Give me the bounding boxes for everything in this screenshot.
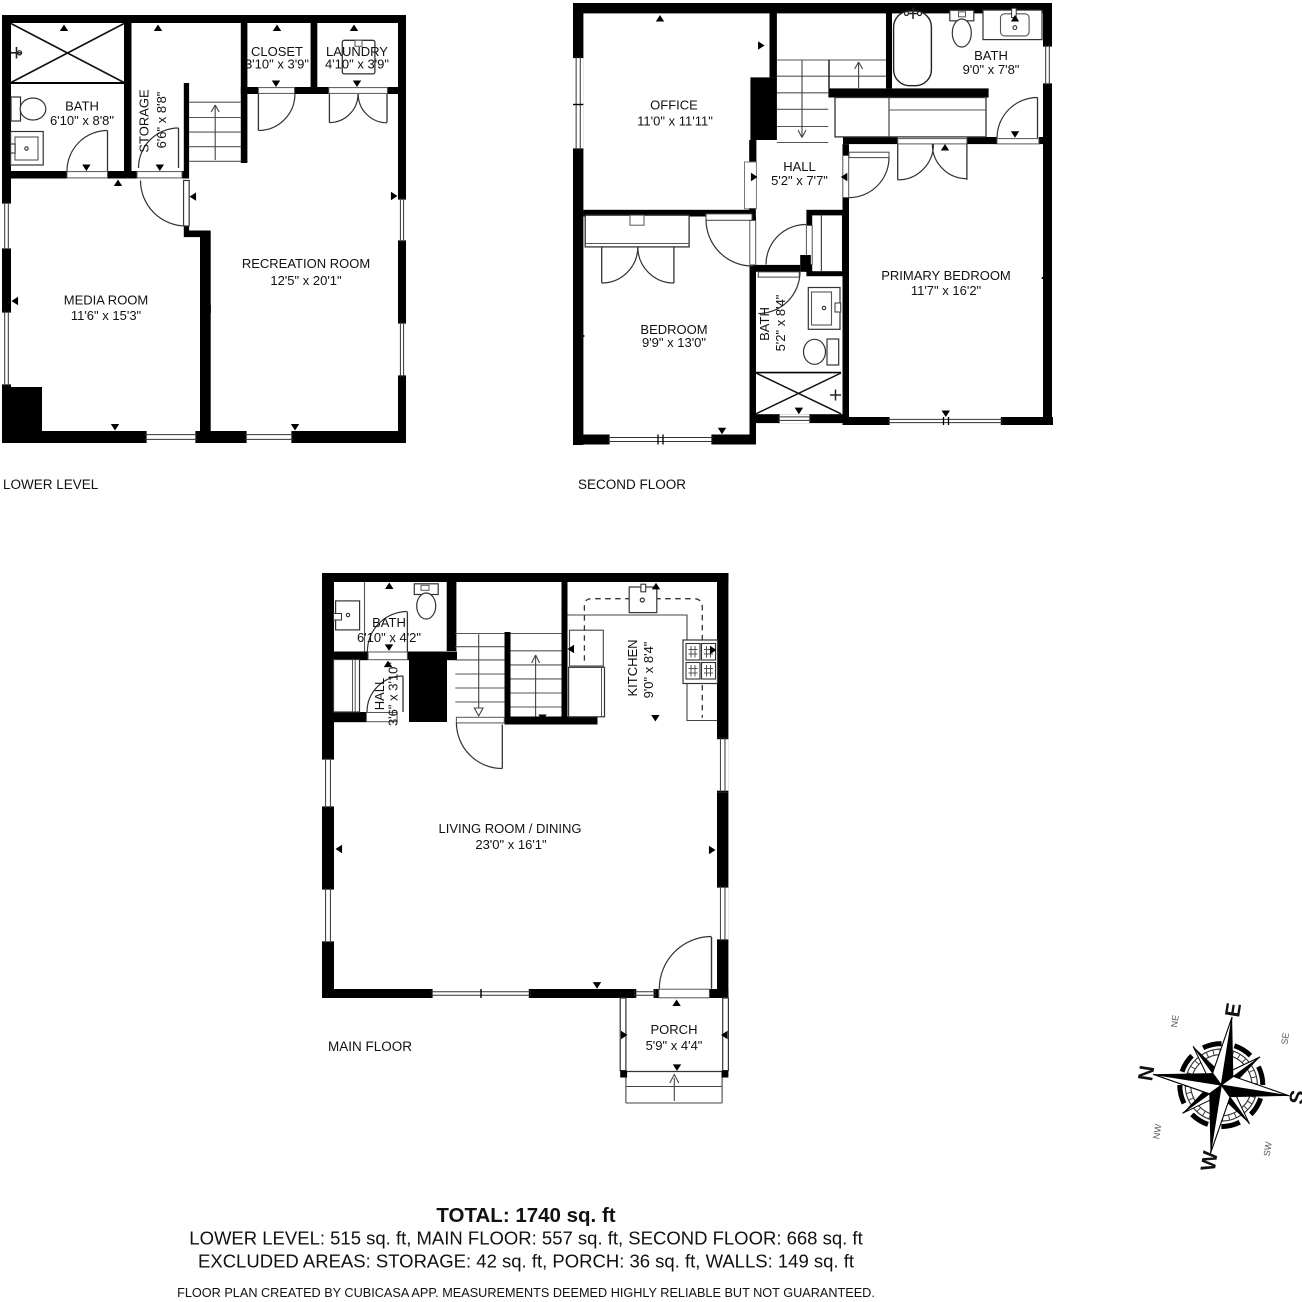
- svg-text:HALL: HALL: [783, 159, 816, 174]
- svg-text:11'0" x 11'11": 11'0" x 11'11": [637, 114, 713, 129]
- svg-text:9'0" x 7'8": 9'0" x 7'8": [963, 62, 1020, 77]
- svg-text:EXCLUDED AREAS: STORAGE: 42 sq: EXCLUDED AREAS: STORAGE: 42 sq. ft, PORC…: [198, 1251, 854, 1272]
- svg-text:12'5" x 20'1": 12'5" x 20'1": [270, 273, 342, 288]
- svg-text:BATH: BATH: [974, 48, 1008, 63]
- svg-text:PRIMARY BEDROOM: PRIMARY BEDROOM: [881, 268, 1011, 283]
- svg-text:MAIN FLOOR: MAIN FLOOR: [328, 1039, 412, 1054]
- svg-text:W: W: [1197, 1149, 1223, 1172]
- svg-text:OFFICE: OFFICE: [650, 98, 698, 113]
- svg-text:BATH: BATH: [372, 615, 406, 630]
- svg-text:TOTAL: 1740 sq. ft: TOTAL: 1740 sq. ft: [436, 1204, 615, 1227]
- svg-text:11'7" x 16'2": 11'7" x 16'2": [911, 283, 982, 298]
- svg-text:6'6" x 8'8": 6'6" x 8'8": [154, 91, 169, 148]
- svg-text:STORAGE: STORAGE: [137, 89, 152, 153]
- svg-text:11'6" x 15'3": 11'6" x 15'3": [71, 308, 142, 323]
- svg-text:6'10" x 4'2": 6'10" x 4'2": [357, 630, 421, 645]
- svg-text:4'10" x 3'9": 4'10" x 3'9": [325, 57, 389, 72]
- svg-text:9'9" x 13'0": 9'9" x 13'0": [642, 335, 706, 350]
- svg-text:S: S: [1285, 1089, 1302, 1106]
- svg-text:BATH: BATH: [757, 307, 772, 341]
- svg-text:5'2" x 7'7": 5'2" x 7'7": [771, 173, 828, 188]
- svg-text:6'10" x 8'8": 6'10" x 8'8": [50, 113, 114, 128]
- svg-text:23'0" x 16'1": 23'0" x 16'1": [475, 837, 547, 852]
- svg-text:3'10" x 3'9": 3'10" x 3'9": [245, 57, 309, 72]
- svg-text:SECOND FLOOR: SECOND FLOOR: [578, 477, 686, 492]
- svg-text:FLOOR PLAN CREATED BY CUBICASA: FLOOR PLAN CREATED BY CUBICASA APP. MEAS…: [177, 1286, 875, 1300]
- svg-text:LOWER LEVEL: LOWER LEVEL: [3, 477, 99, 492]
- svg-text:BATH: BATH: [65, 99, 99, 114]
- svg-text:SE: SE: [1279, 1032, 1291, 1045]
- svg-text:MEDIA ROOM: MEDIA ROOM: [64, 293, 149, 308]
- svg-text:3'6" x 3'10": 3'6" x 3'10": [386, 662, 401, 726]
- svg-text:LIVING ROOM / DINING: LIVING ROOM / DINING: [438, 821, 581, 836]
- svg-text:RECREATION ROOM: RECREATION ROOM: [242, 256, 370, 271]
- svg-text:9'0" x 8'4": 9'0" x 8'4": [641, 641, 656, 698]
- svg-text:5'2" x 8'4": 5'2" x 8'4": [773, 294, 788, 351]
- svg-text:5'9" x 4'4": 5'9" x 4'4": [646, 1038, 703, 1053]
- svg-text:PORCH: PORCH: [651, 1022, 698, 1037]
- svg-text:LOWER LEVEL: 515 sq. ft, MAIN: LOWER LEVEL: 515 sq. ft, MAIN FLOOR: 557…: [189, 1228, 862, 1249]
- svg-text:KITCHEN: KITCHEN: [625, 639, 640, 696]
- svg-text:NE: NE: [1169, 1014, 1181, 1028]
